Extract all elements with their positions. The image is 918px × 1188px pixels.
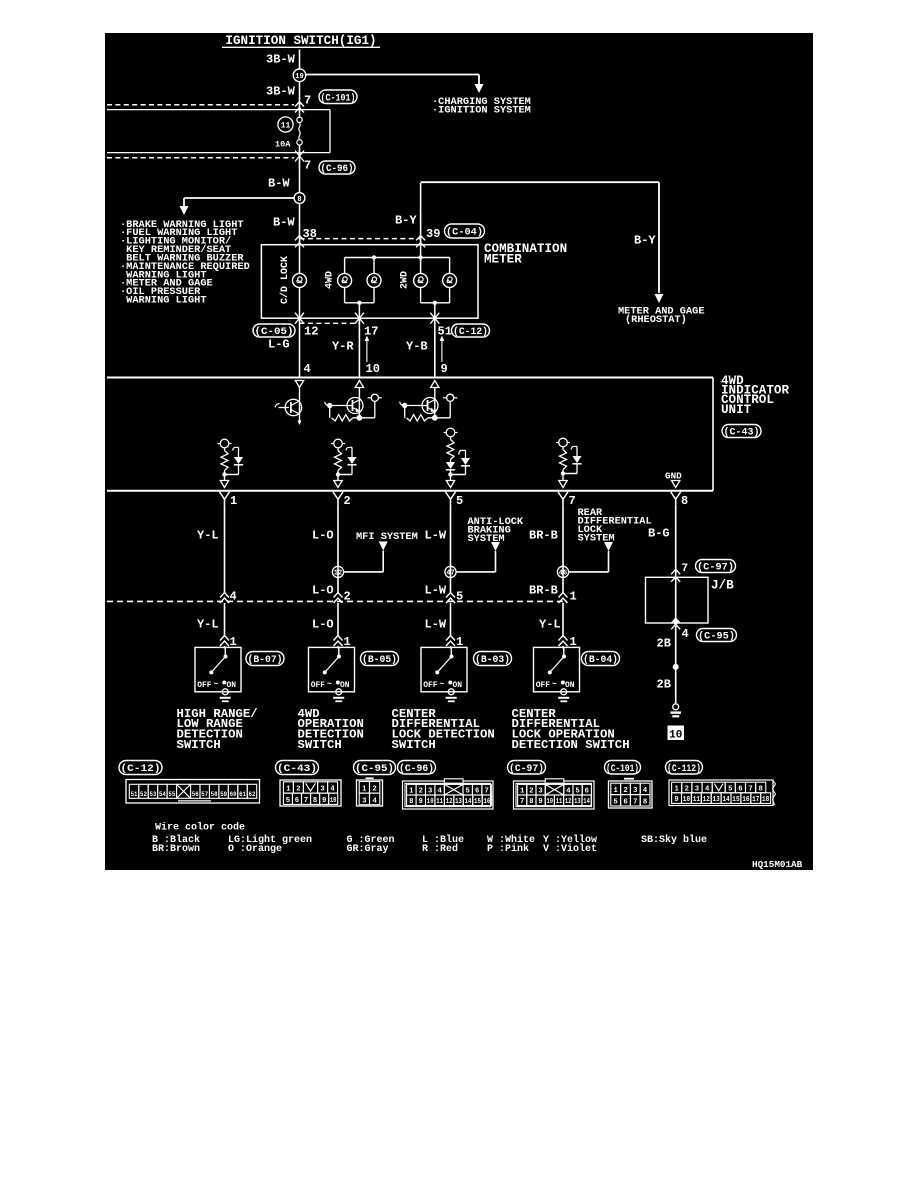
svg-text:1: 1 (362, 786, 367, 794)
svg-text:4: 4 (438, 788, 443, 796)
svg-text:L-O: L-O (312, 618, 334, 632)
svg-text:OFF: OFF (536, 681, 551, 690)
svg-text:6: 6 (623, 799, 627, 807)
svg-text:(B-07): (B-07) (248, 654, 283, 666)
svg-text:METER: METER (484, 252, 522, 266)
svg-text:10: 10 (669, 729, 682, 741)
svg-text:10: 10 (427, 798, 434, 806)
svg-text:~: ~ (214, 680, 219, 689)
svg-text:8: 8 (297, 196, 301, 204)
svg-text:12: 12 (565, 798, 572, 806)
svg-text:L-W: L-W (425, 529, 447, 543)
svg-text:(C-96): (C-96) (321, 163, 354, 175)
svg-text:4: 4 (304, 362, 311, 376)
svg-text:1: 1 (614, 787, 619, 795)
svg-text:(C-95): (C-95) (355, 763, 394, 775)
svg-text:4: 4 (330, 786, 335, 794)
svg-text:14: 14 (465, 798, 472, 806)
svg-text:61: 61 (239, 791, 246, 798)
svg-text:3: 3 (538, 788, 542, 796)
svg-text:ON: ON (453, 681, 463, 690)
svg-text:9: 9 (441, 362, 448, 376)
svg-text:17: 17 (752, 796, 759, 804)
svg-text:11: 11 (693, 796, 701, 804)
svg-text:11: 11 (556, 798, 563, 806)
svg-text:53: 53 (150, 791, 157, 798)
svg-text:(B-05): (B-05) (362, 654, 397, 666)
svg-text:OFF: OFF (311, 681, 326, 690)
svg-text:2B: 2B (657, 636, 671, 650)
svg-text:ON: ON (340, 681, 350, 690)
svg-text:B-W: B-W (268, 177, 290, 191)
svg-text:7: 7 (748, 785, 752, 793)
svg-text:(C-12): (C-12) (121, 763, 161, 775)
svg-text:L-W: L-W (425, 618, 447, 632)
svg-text:(C-97): (C-97) (509, 763, 544, 775)
svg-text:Y-L: Y-L (197, 529, 219, 543)
svg-text:L-O: L-O (312, 584, 334, 598)
svg-text:8: 8 (681, 494, 688, 508)
svg-text:(C-101): (C-101) (606, 763, 639, 775)
svg-text:6: 6 (475, 788, 479, 796)
svg-text:13: 13 (455, 798, 462, 806)
svg-text:58: 58 (211, 791, 218, 798)
svg-text:(C-96): (C-96) (399, 763, 434, 775)
svg-text:·IGNITION SYSTEM: ·IGNITION SYSTEM (432, 105, 531, 117)
svg-text:17: 17 (364, 325, 378, 339)
svg-text:ON: ON (565, 681, 575, 690)
svg-text:7: 7 (682, 563, 689, 575)
svg-text:2: 2 (296, 786, 300, 794)
svg-text:7: 7 (484, 788, 488, 796)
svg-text:~: ~ (552, 680, 557, 689)
svg-text:12: 12 (304, 325, 318, 339)
svg-text:7: 7 (304, 797, 308, 805)
svg-text:(C-43): (C-43) (724, 427, 760, 439)
svg-text:(C-97): (C-97) (697, 562, 734, 574)
svg-text:4: 4 (682, 627, 689, 641)
svg-text:SWITCH: SWITCH (177, 738, 221, 752)
svg-text:P :Pink: P :Pink (487, 843, 529, 855)
svg-text:HQ15M01AB: HQ15M01AB (752, 859, 803, 870)
svg-text:(C-112): (C-112) (667, 763, 701, 775)
svg-text:62: 62 (249, 791, 256, 798)
svg-text:1: 1 (570, 590, 577, 604)
svg-text:3: 3 (362, 797, 366, 805)
svg-text:OFF: OFF (197, 681, 212, 690)
svg-text:39: 39 (426, 227, 440, 241)
svg-text:55: 55 (168, 791, 175, 798)
svg-text:51: 51 (438, 325, 452, 339)
svg-text:7: 7 (633, 799, 637, 807)
svg-text:R :Red: R :Red (422, 843, 458, 855)
svg-text:2: 2 (685, 785, 689, 793)
svg-text:19: 19 (295, 73, 303, 81)
svg-text:MFI SYSTEM: MFI SYSTEM (356, 531, 418, 543)
svg-text:8: 8 (313, 797, 317, 805)
svg-text:10: 10 (683, 796, 690, 804)
svg-text:1: 1 (520, 788, 525, 796)
svg-text:12: 12 (703, 796, 710, 804)
svg-text:13: 13 (574, 798, 581, 806)
svg-text:11: 11 (436, 798, 443, 806)
svg-text:4: 4 (372, 797, 377, 805)
svg-text:BR-B: BR-B (529, 529, 558, 543)
svg-text:IGNITION SWITCH(IG1): IGNITION SWITCH(IG1) (225, 34, 376, 48)
svg-text:3: 3 (695, 785, 699, 793)
svg-text:5: 5 (575, 788, 579, 796)
svg-text:46: 46 (559, 570, 567, 578)
svg-text:5: 5 (466, 788, 470, 796)
svg-text:8: 8 (643, 799, 647, 807)
svg-text:3: 3 (320, 786, 324, 794)
svg-text:10: 10 (547, 798, 554, 806)
svg-text:B-G: B-G (648, 527, 670, 541)
svg-text:10A: 10A (275, 139, 291, 149)
svg-text:9: 9 (674, 796, 678, 804)
svg-text:BR-B: BR-B (529, 584, 558, 598)
svg-text:2: 2 (529, 788, 533, 796)
svg-text:Y-B: Y-B (406, 340, 428, 354)
svg-text:4: 4 (705, 785, 710, 793)
svg-text:7: 7 (304, 94, 311, 108)
svg-text:SB:Sky blue: SB:Sky blue (641, 834, 707, 846)
svg-text:47: 47 (446, 570, 454, 578)
svg-text:13: 13 (713, 796, 720, 804)
svg-text:V :Violet: V :Violet (543, 843, 597, 855)
svg-text:9: 9 (322, 797, 326, 805)
svg-text:L-W: L-W (425, 584, 447, 598)
svg-text:(C-101): (C-101) (321, 92, 356, 104)
svg-text:1: 1 (675, 785, 680, 793)
svg-text:2: 2 (344, 494, 351, 508)
svg-text:14: 14 (722, 796, 730, 804)
svg-text:WARNING LIGHT: WARNING LIGHT (120, 295, 207, 307)
svg-text:J/B: J/B (711, 579, 734, 593)
svg-text:Y-R: Y-R (332, 340, 354, 354)
svg-text:5: 5 (614, 799, 618, 807)
svg-text:11: 11 (281, 122, 291, 131)
svg-text:L-O: L-O (312, 529, 334, 543)
svg-text:(B-04): (B-04) (583, 654, 618, 666)
svg-text:(C-95): (C-95) (698, 631, 735, 643)
svg-text:5: 5 (286, 797, 290, 805)
svg-text:OFF: OFF (423, 681, 438, 690)
svg-text:(C-05): (C-05) (255, 326, 294, 338)
svg-text:1: 1 (409, 788, 414, 796)
svg-text:SWITCH: SWITCH (298, 738, 342, 752)
svg-text:ON: ON (227, 681, 237, 690)
svg-text:60: 60 (230, 791, 237, 798)
svg-text:7: 7 (520, 798, 524, 806)
svg-text:BR:Brown: BR:Brown (152, 844, 200, 855)
svg-text:Wire color code: Wire color code (155, 822, 245, 834)
svg-text:(C-12): (C-12) (453, 326, 488, 338)
svg-text:10: 10 (366, 362, 380, 376)
svg-text:15: 15 (474, 798, 481, 806)
svg-text:(C-04): (C-04) (446, 227, 483, 239)
svg-text:6: 6 (585, 788, 589, 796)
svg-text:Y-L: Y-L (197, 618, 219, 632)
svg-text:2: 2 (419, 788, 423, 796)
svg-text:12: 12 (446, 798, 453, 806)
svg-text:9: 9 (538, 798, 542, 806)
svg-text:4WD: 4WD (325, 271, 336, 289)
svg-text:8: 8 (529, 798, 533, 806)
svg-text:~: ~ (327, 680, 332, 689)
svg-text:1: 1 (230, 494, 237, 508)
svg-text:B-W: B-W (273, 216, 295, 230)
svg-text:3B-W: 3B-W (266, 85, 296, 99)
svg-text:6: 6 (738, 785, 742, 793)
svg-text:~: ~ (440, 680, 445, 689)
svg-text:5: 5 (456, 494, 463, 508)
svg-text:59: 59 (220, 791, 227, 798)
svg-text:(B-03): (B-03) (475, 654, 510, 666)
svg-text:8: 8 (409, 798, 413, 806)
svg-text:16: 16 (742, 796, 749, 804)
svg-text:1: 1 (286, 786, 291, 794)
svg-text:SWITCH: SWITCH (392, 738, 436, 752)
svg-text:8: 8 (759, 785, 763, 793)
svg-text:14: 14 (583, 798, 590, 806)
svg-text:10: 10 (330, 797, 336, 805)
svg-text:O :Orange: O :Orange (228, 844, 282, 855)
svg-text:2: 2 (372, 786, 376, 794)
svg-text:54: 54 (159, 791, 166, 798)
svg-text:9: 9 (419, 798, 423, 806)
svg-text:Y-L: Y-L (539, 618, 561, 632)
svg-text:L-G: L-G (268, 338, 290, 352)
svg-text:(C-43): (C-43) (277, 763, 317, 775)
svg-text:C/D LOCK: C/D LOCK (279, 256, 291, 304)
svg-text:7: 7 (304, 159, 311, 173)
svg-text:56: 56 (192, 791, 199, 798)
svg-text:3: 3 (428, 788, 432, 796)
svg-text:3: 3 (633, 787, 637, 795)
svg-text:18: 18 (762, 796, 769, 804)
svg-text:57: 57 (201, 791, 208, 798)
svg-text:B-Y: B-Y (395, 214, 417, 228)
svg-text:UNIT: UNIT (721, 403, 752, 417)
svg-text:51: 51 (131, 791, 138, 798)
svg-text:15: 15 (732, 796, 739, 804)
svg-text:3B-W: 3B-W (266, 53, 296, 67)
svg-text:2: 2 (623, 787, 627, 795)
svg-text:4: 4 (566, 788, 571, 796)
svg-text:4: 4 (643, 787, 648, 795)
svg-text:(RHEOSTAT): (RHEOSTAT) (625, 314, 687, 326)
svg-text:2B: 2B (657, 678, 671, 692)
svg-text:5: 5 (728, 785, 732, 793)
svg-text:DETECTION SWITCH: DETECTION SWITCH (512, 738, 630, 752)
svg-text:52: 52 (140, 791, 147, 798)
svg-text:B-Y: B-Y (634, 234, 656, 248)
svg-text:16: 16 (484, 798, 491, 806)
svg-text:2WD: 2WD (400, 271, 411, 289)
svg-text:6: 6 (295, 797, 299, 805)
svg-text:12: 12 (334, 570, 342, 578)
svg-text:GR:Gray: GR:Gray (347, 844, 389, 855)
svg-text:7: 7 (569, 494, 576, 508)
